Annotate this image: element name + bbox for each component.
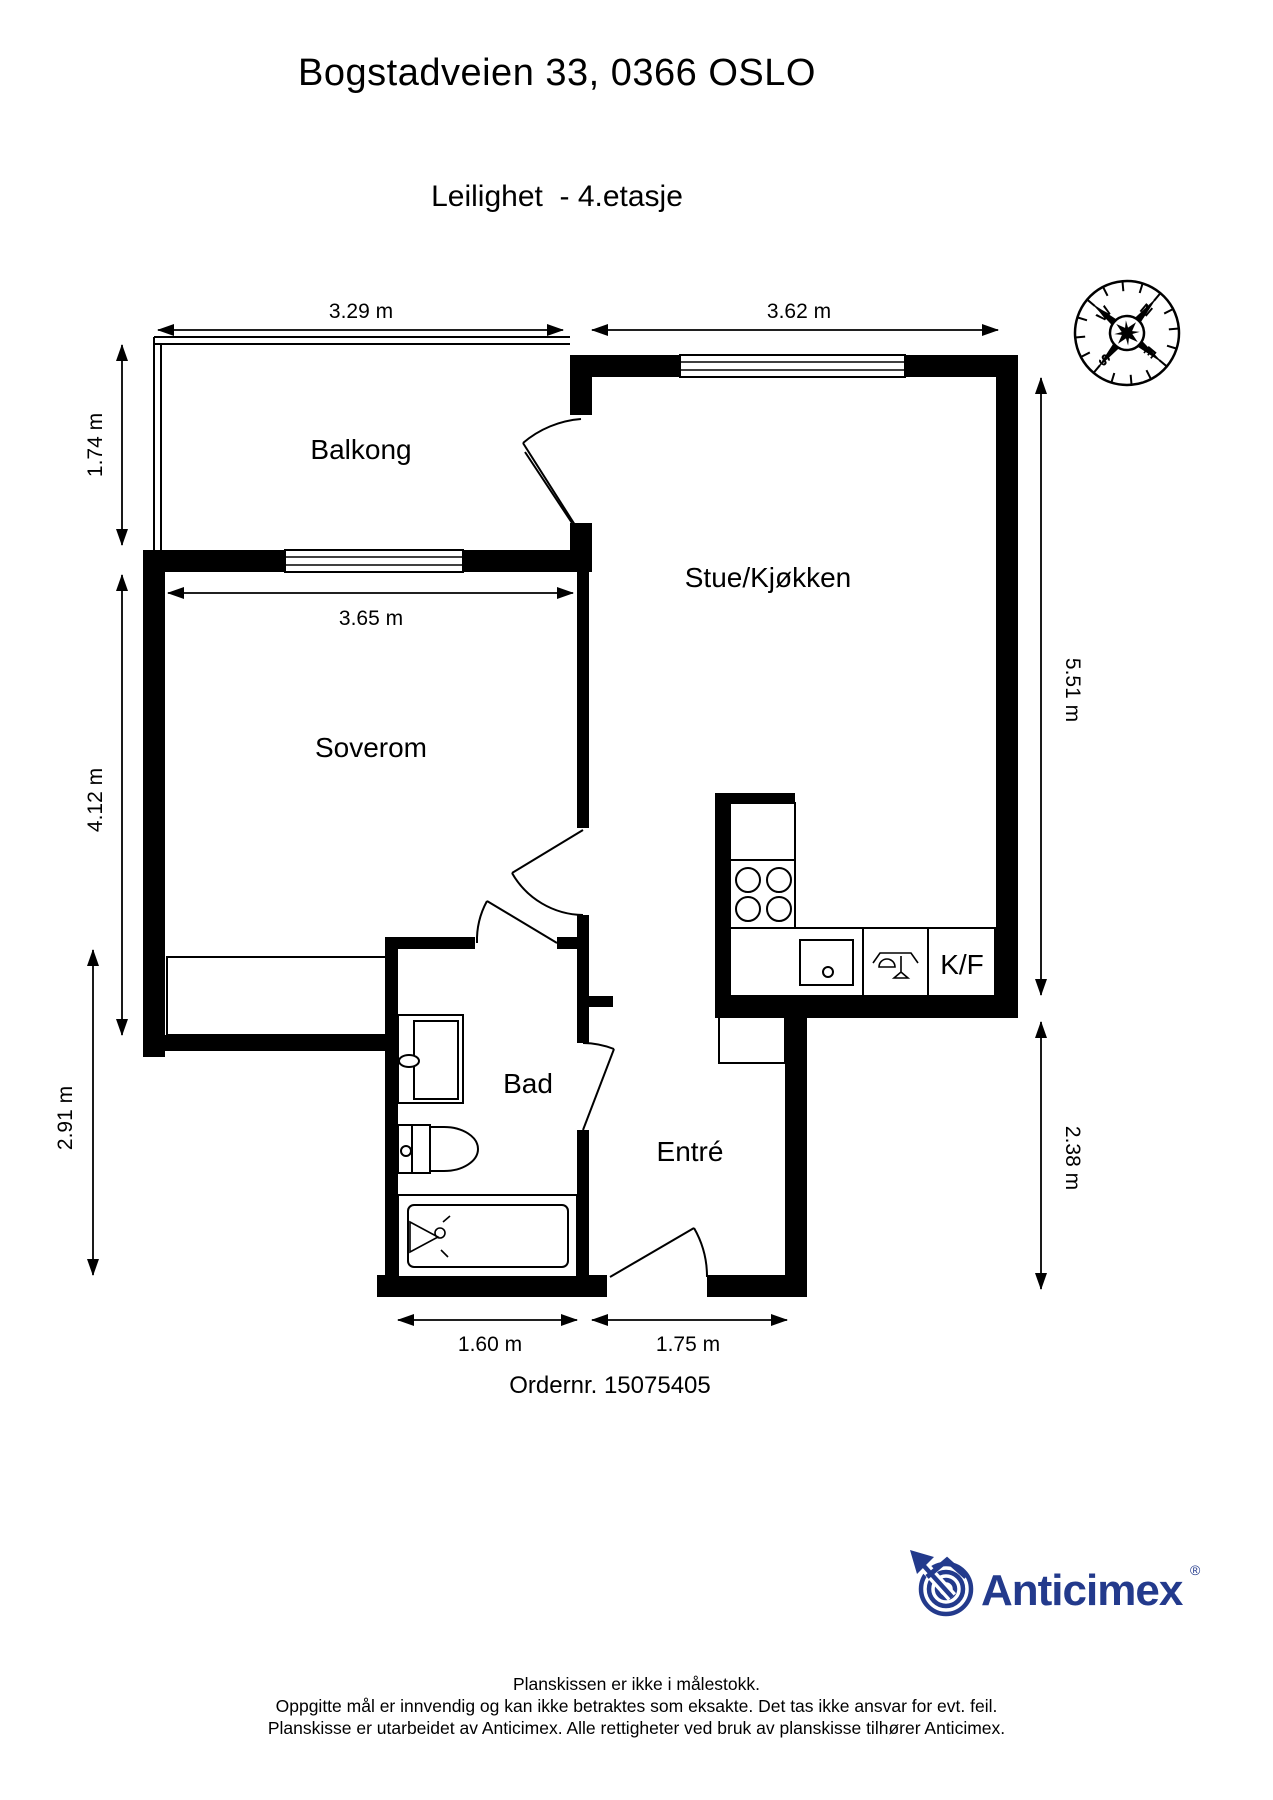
dimension-label-balcony-depth: 1.74 m <box>84 413 107 477</box>
toilet <box>398 1125 478 1173</box>
bathroom-inner-door <box>477 901 557 943</box>
kitchen-fixtures: K/F <box>719 803 995 1063</box>
bathtub <box>398 1195 577 1277</box>
disclaimer-line-3: Planskisse er utarbeidet av Anticimex. A… <box>0 1717 1273 1739</box>
room-label-balcony: Balkong <box>310 434 411 465</box>
dimension-label-entry-depth: 2.38 m <box>1061 1126 1084 1190</box>
anticimex-logo: Anticimex ® <box>910 1550 1201 1615</box>
dimension-label-living-width: 3.62 m <box>767 300 831 323</box>
bathroom-entry-door <box>583 1043 614 1130</box>
kitchen-sink <box>800 940 853 985</box>
kitchen-cabinet <box>730 803 795 860</box>
dimension-label-bath-width: 1.60 m <box>458 1333 522 1356</box>
disclaimer-line-2: Oppgitte mål er innvendig og kan ikke be… <box>0 1695 1273 1717</box>
room-label-bedroom: Soverom <box>315 732 427 763</box>
registered-trademark-icon: ® <box>1190 1562 1201 1578</box>
room-label-bathroom: Bad <box>503 1068 553 1099</box>
disclaimer-footer: Planskissen er ikke i målestokk. Oppgitt… <box>0 1673 1273 1739</box>
bedroom-window <box>285 550 463 572</box>
room-label-living-kitchen: Stue/Kjøkken <box>685 562 852 593</box>
dimension-label-living-depth: 5.51 m <box>1061 658 1084 722</box>
entrance-door <box>610 1228 707 1277</box>
walls <box>143 355 1018 1297</box>
compass-rose-icon: N E S W <box>1054 260 1201 407</box>
wardrobe <box>167 957 387 1035</box>
anticimex-logo-icon <box>910 1550 971 1614</box>
dimension-label-bath-depth: 2.91 m <box>54 1086 77 1150</box>
dimension-label-bedroom-width: 3.65 m <box>339 607 403 630</box>
dimension-label-entry-width: 1.75 m <box>656 1333 720 1356</box>
living-room-window <box>680 355 905 377</box>
bathroom-sink <box>398 1015 463 1103</box>
floor-plan-canvas: K/F Balkong Stue/Kjøkken <box>0 0 1273 1800</box>
stove <box>730 860 795 928</box>
dimension-label-bedroom-depth: 4.12 m <box>84 768 107 832</box>
bathroom-fixtures <box>398 1015 577 1277</box>
disclaimer-line-1: Planskissen er ikke i målestokk. <box>0 1673 1273 1695</box>
room-label-entry: Entré <box>657 1136 724 1167</box>
fridge-freezer-label: K/F <box>940 949 984 980</box>
dimension-label-balcony-width: 3.29 m <box>329 300 393 323</box>
anticimex-logo-text: Anticimex <box>981 1566 1184 1615</box>
balcony-door <box>523 419 581 525</box>
bedroom-door <box>512 830 583 915</box>
order-number: Ordernr. 15075405 <box>509 1372 710 1400</box>
